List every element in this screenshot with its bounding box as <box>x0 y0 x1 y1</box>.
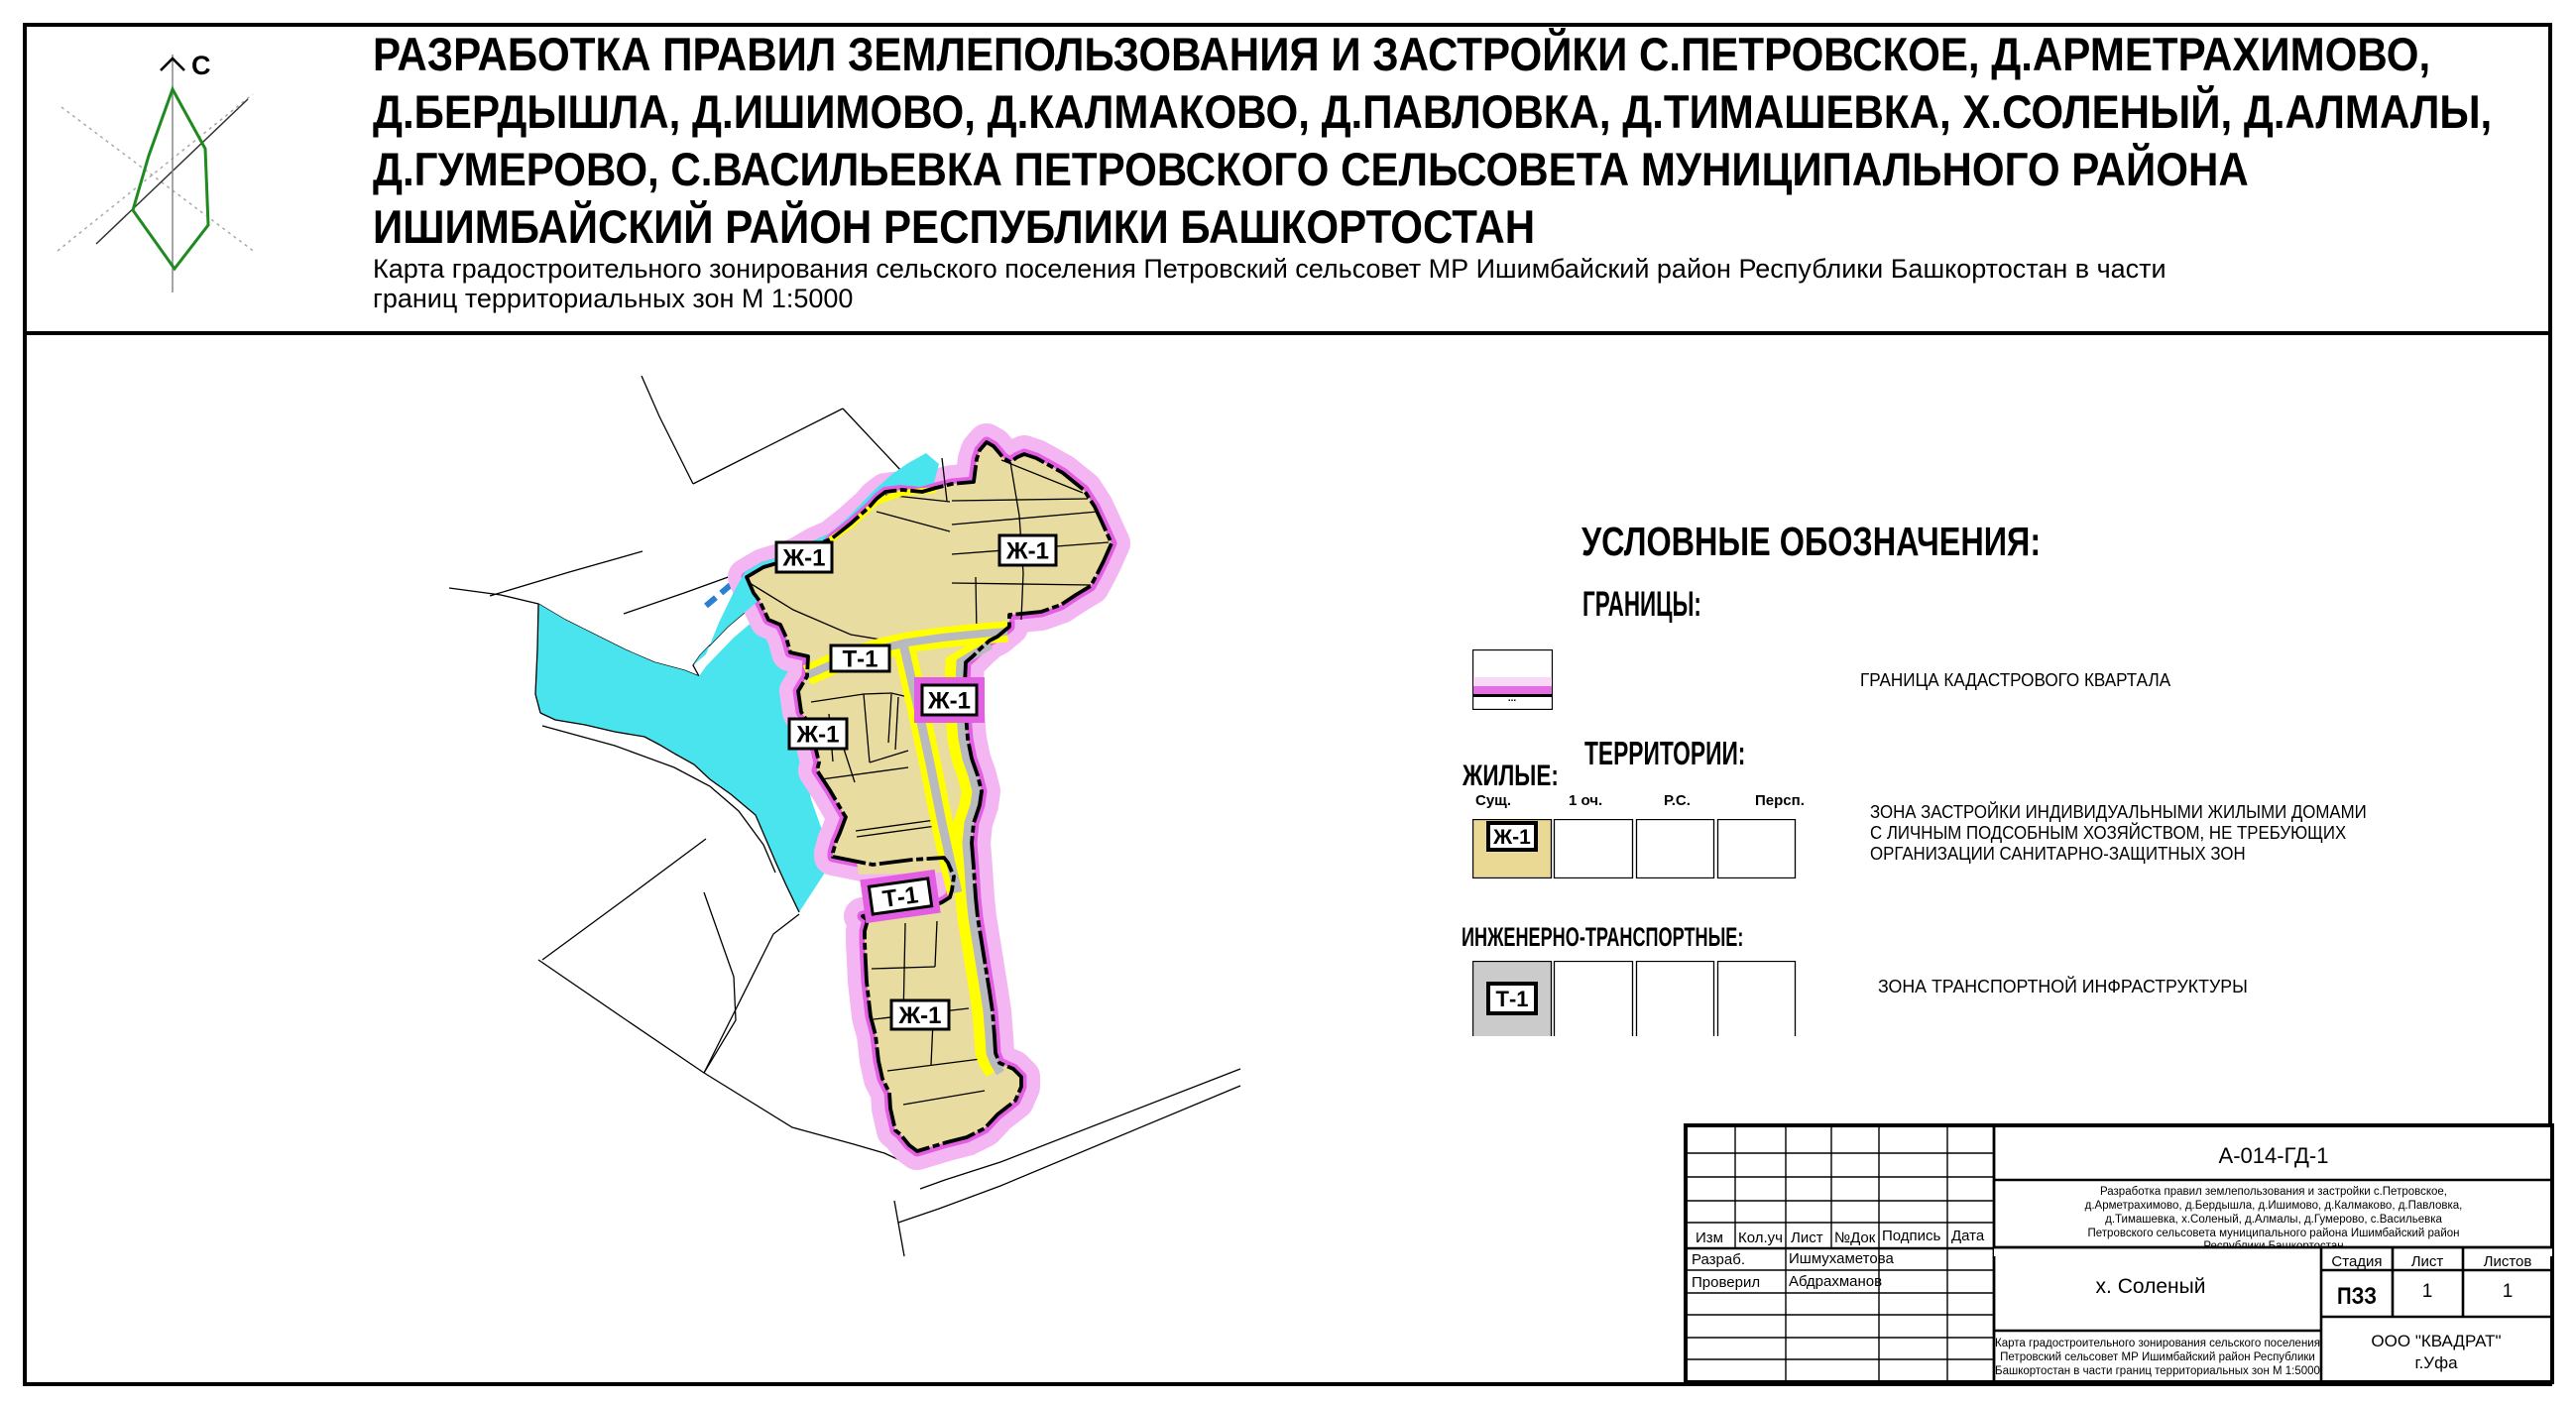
svg-text:Ж-1: Ж-1 <box>795 722 839 749</box>
svg-text:д.Арметрахимово, д.Бердышла, д: д.Арметрахимово, д.Бердышла, д.Ишимово, … <box>2085 1200 2463 1212</box>
svg-text:№Док: №Док <box>1834 1229 1876 1246</box>
svg-text:Кол.уч: Кол.уч <box>1738 1229 1783 1246</box>
svg-text:д.Тимашевка, х.Соленый, д.Алма: д.Тимашевка, х.Соленый, д.Алмалы, д.Гуме… <box>2105 1214 2442 1226</box>
svg-text:ПЗЗ: ПЗЗ <box>2337 1283 2377 1310</box>
svg-text:Карта градостроительного зонир: Карта градостроительного зонирования сел… <box>1995 1338 2320 1349</box>
svg-text:Абдрахманов: Абдрахманов <box>1789 1273 1882 1290</box>
svg-text:...: ... <box>1508 693 1517 704</box>
svg-text:Ж-1: Ж-1 <box>1492 826 1531 849</box>
svg-text:А-014-ГД-1: А-014-ГД-1 <box>2219 1143 2329 1168</box>
svg-text:Ж-1: Ж-1 <box>927 688 971 715</box>
svg-text:Т-1: Т-1 <box>1496 987 1529 1011</box>
svg-text:Листов: Листов <box>2484 1253 2532 1270</box>
svg-text:Ж-1: Ж-1 <box>781 545 825 572</box>
svg-text:Ж-1: Ж-1 <box>897 1002 941 1029</box>
svg-text:Ишмухаметова: Ишмухаметова <box>1789 1250 1894 1267</box>
svg-text:Лист: Лист <box>1791 1229 1823 1246</box>
svg-text:Проверил: Проверил <box>1692 1274 1760 1291</box>
svg-text:ООО "КВАДРАТ": ООО "КВАДРАТ" <box>2371 1332 2501 1350</box>
svg-text:Лист: Лист <box>2411 1253 2444 1270</box>
svg-text:Петровский сельсовет МР Ишимба: Петровский сельсовет МР Ишимбайский райо… <box>2000 1351 2315 1363</box>
svg-text:1: 1 <box>2422 1281 2433 1302</box>
svg-text:Разработка правил землепользов: Разработка правил землепользования и зас… <box>2100 1186 2447 1198</box>
svg-text:Разраб.: Разраб. <box>1692 1251 1745 1268</box>
svg-text:Т-1: Т-1 <box>880 881 919 913</box>
svg-text:Петровского сельсовета муницип: Петровского сельсовета муниципального ра… <box>2088 1228 2460 1239</box>
svg-text:Стадия: Стадия <box>2331 1253 2382 1270</box>
svg-text:Т-1: Т-1 <box>843 646 878 673</box>
svg-text:х. Соленый: х. Соленый <box>2096 1275 2206 1298</box>
svg-text:Башкортостан в части границ те: Башкортостан в части границ территориаль… <box>1995 1365 2320 1377</box>
svg-text:Дата: Дата <box>1951 1228 1985 1244</box>
svg-text:1: 1 <box>2503 1281 2514 1302</box>
svg-text:Изм: Изм <box>1696 1229 1723 1246</box>
svg-text:г.Уфа: г.Уфа <box>2414 1353 2458 1372</box>
svg-text:Ж-1: Ж-1 <box>1005 538 1049 565</box>
svg-text:Подпись: Подпись <box>1882 1228 1941 1244</box>
svg-text:С: С <box>191 51 211 80</box>
